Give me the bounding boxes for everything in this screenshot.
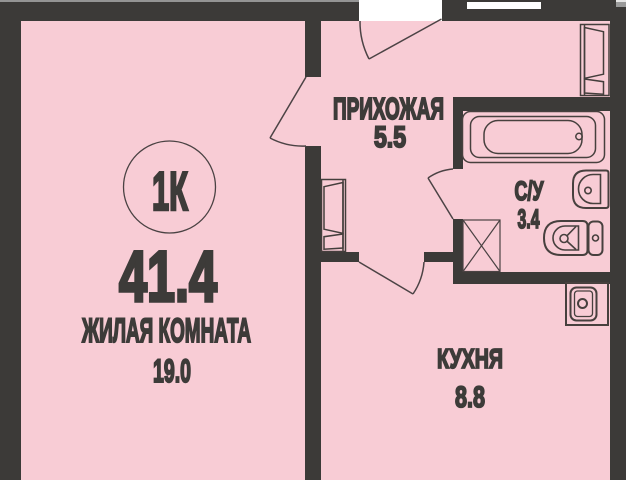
svg-text:ЖИЛАЯ КОМНАТА: ЖИЛАЯ КОМНАТА: [81, 312, 251, 350]
svg-text:С/У: С/У: [515, 176, 545, 206]
svg-text:41.4: 41.4: [119, 238, 217, 317]
svg-text:1К: 1К: [152, 160, 188, 222]
svg-text:КУХНЯ: КУХНЯ: [437, 342, 503, 374]
svg-text:3.4: 3.4: [518, 204, 540, 234]
svg-text:8.8: 8.8: [455, 381, 485, 414]
svg-text:5.5: 5.5: [374, 121, 406, 154]
svg-text:19.0: 19.0: [153, 353, 191, 389]
